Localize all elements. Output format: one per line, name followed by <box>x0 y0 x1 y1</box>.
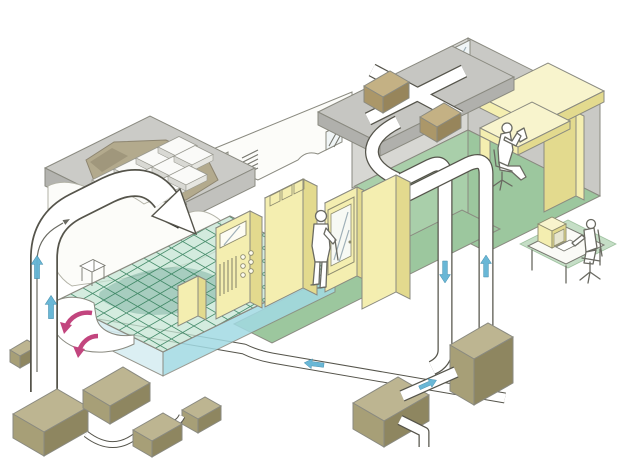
process-cabinet-4 <box>362 175 410 309</box>
hvac-unit-small-2 <box>182 397 221 433</box>
diagram-canvas: Isometric cutaway diagram of a cleanroom… <box>0 0 640 467</box>
cleanroom-hvac-diagram: Isometric cutaway diagram of a cleanroom… <box>0 0 640 467</box>
hvac-unit-large <box>13 389 88 456</box>
hvac-unit-rear <box>83 367 150 424</box>
door-handle <box>349 241 352 244</box>
hvac-unit-small-1 <box>133 413 182 457</box>
process-cabinet-2 <box>265 179 317 307</box>
process-cabinet-1 <box>216 211 262 319</box>
computer-monitor-icon <box>538 217 566 248</box>
